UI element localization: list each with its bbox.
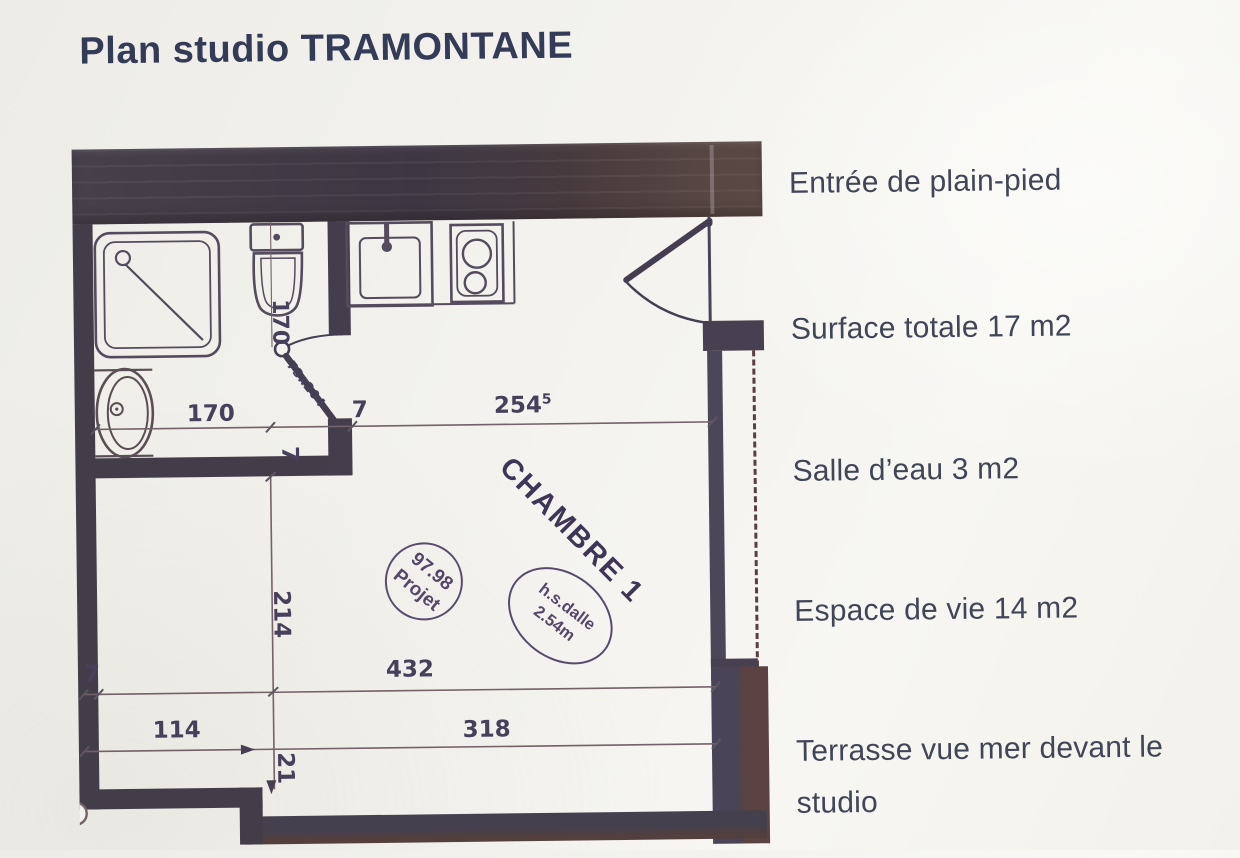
- dim-living-depth: 214: [268, 590, 295, 638]
- dim-bath-width: 170: [187, 401, 235, 428]
- plan-linework: [72, 138, 771, 851]
- note-bathroom: Salle d’eau 3 m2: [792, 443, 1019, 497]
- note-entry: Entrée de plain-pied: [789, 155, 1062, 210]
- dim-mid-wall-thickness: 7: [276, 446, 302, 462]
- note-surface: Surface totale 17 m2: [791, 300, 1072, 355]
- dim-step-depth: 21: [272, 752, 298, 784]
- dim-bath-depth: 170: [267, 299, 293, 345]
- note-terrace: Terrasse vue mer devant le studio: [796, 721, 1229, 829]
- note-living: Espace de vie 14 m2: [794, 582, 1079, 637]
- bottom-left-circle-symbol: [72, 803, 87, 825]
- dim-top-wall-thickness: 7: [352, 397, 368, 423]
- scanned-sheet: Plan studio TRAMONTANE: [0, 0, 1240, 858]
- washbasin-icon: [94, 369, 153, 458]
- dim-living-width: 432: [386, 656, 434, 683]
- dimension-lines: [77, 217, 717, 792]
- entrance-door-icon: [625, 219, 713, 324]
- dim-left-wall-thickness: 7: [84, 661, 100, 687]
- floor-plan: 170 7 2545 170 73x204 7 214 7 432 114 31…: [72, 138, 771, 851]
- cooktop-icon: [451, 224, 504, 302]
- kitchen-sink-icon: [347, 221, 433, 306]
- dim-room-width: 2545: [494, 392, 552, 419]
- shower-icon: [95, 232, 221, 358]
- dim-bottom-right-width: 318: [463, 716, 511, 743]
- page-title: Plan studio TRAMONTANE: [79, 25, 573, 74]
- dim-bottom-left-width: 114: [153, 717, 201, 744]
